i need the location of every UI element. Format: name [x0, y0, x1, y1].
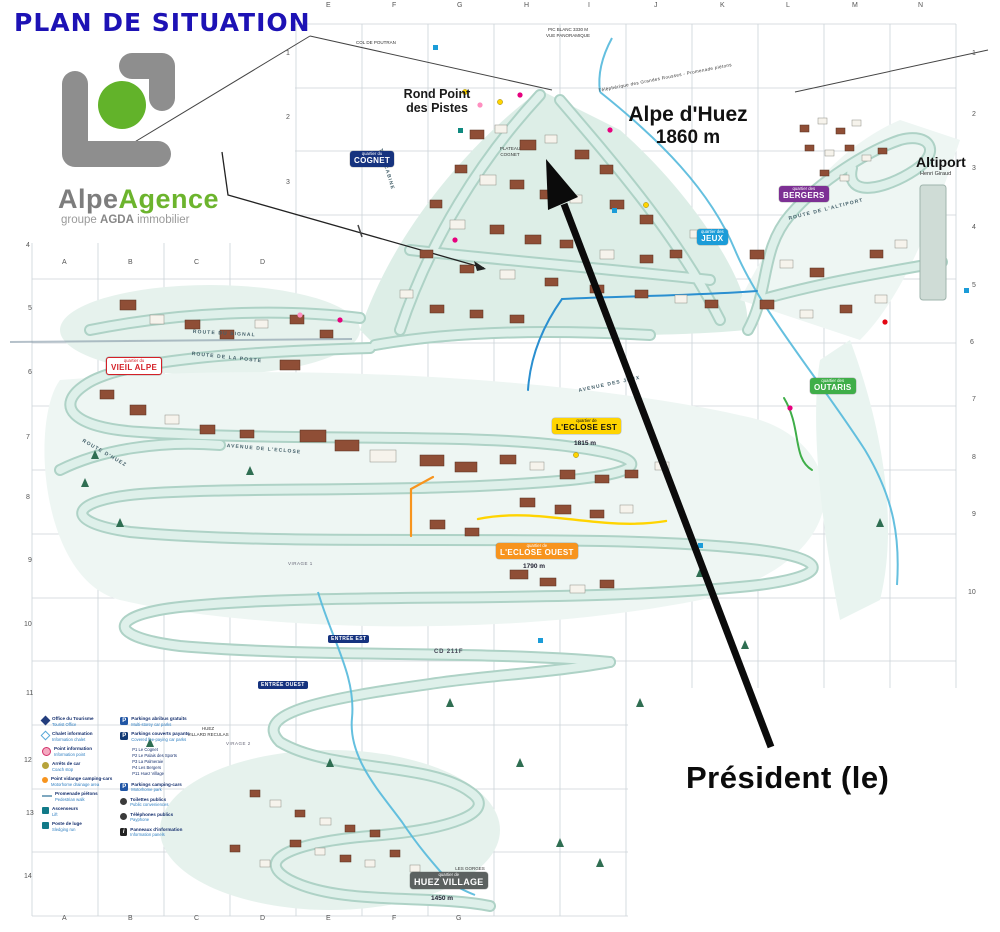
- agency-brand: AlpeAgence: [58, 184, 219, 215]
- grid-letter: F: [392, 915, 396, 922]
- legend-item: Téléphones publicsPayphone: [120, 812, 189, 823]
- grid-letter: H: [524, 2, 529, 9]
- grid-letter: E: [326, 915, 331, 922]
- legend-left-column: Office du TourismeTourist Office Chalet …: [42, 716, 112, 837]
- logo-green-circle: [98, 81, 146, 129]
- covered-parking-icon: P: [120, 732, 128, 740]
- grid-number: 4: [972, 224, 976, 231]
- grid-letter: I: [588, 2, 590, 9]
- legend-item: PParkings couverts payantsCovered fee-pa…: [120, 731, 189, 742]
- grid-number: 1: [286, 50, 290, 57]
- badge-entree-est: ENTRÉE EST: [328, 635, 369, 643]
- street-virage-1: VIRAGE 1: [288, 561, 313, 566]
- legend-item: Office du TourismeTourist Office: [42, 716, 112, 727]
- property-name-label: Président (le): [686, 760, 889, 796]
- label-col-poutran: COL DE POUTRAN: [356, 40, 396, 46]
- grid-number: 12: [24, 757, 32, 764]
- quartier-name: VIEIL ALPE: [111, 364, 157, 373]
- label-resort: Alpe d'Huez 1860 m: [608, 103, 768, 149]
- quartier-badge-outaris: quartier des OUTARIS: [810, 378, 856, 394]
- resort-name: Alpe d'Huez: [608, 103, 768, 127]
- eclose-est-altitude: 1815 m: [574, 440, 596, 447]
- info-point-icon: [42, 747, 51, 756]
- agency-logo-mark: [50, 52, 230, 177]
- grid-number: 1: [972, 50, 976, 57]
- lift-icon: [42, 807, 49, 814]
- quartier-name: COGNET: [354, 157, 390, 166]
- plan-de-situation-page: PLAN DE SITUATION AlpeAgence groupe AGDA…: [0, 0, 1000, 932]
- grid-number: 6: [28, 369, 32, 376]
- legend-item: Arrêts de carCoach stop: [42, 761, 112, 772]
- page-title: PLAN DE SITUATION: [14, 8, 311, 37]
- info-panel-icon: i: [120, 828, 127, 836]
- tagline-bold: AGDA: [100, 214, 134, 226]
- grid-letter: F: [392, 2, 396, 9]
- label-cd-road: CD 211F: [434, 649, 463, 655]
- legend-item: Promenade piétonsPedestrian walk: [42, 791, 112, 802]
- coach-stop-icon: [42, 762, 49, 769]
- quartier-badge-eclose-ouest: quartier de L'ECLOSE OUEST: [496, 543, 578, 559]
- grid-letter: G: [456, 915, 461, 922]
- grid-number: 2: [286, 114, 290, 121]
- label-pic-blanc: PIC BLANC 3330 M VUE PANORAMIQUE: [532, 27, 604, 39]
- grid-number: 5: [28, 305, 32, 312]
- grid-letter: C: [194, 259, 199, 266]
- tagline-prefix: groupe: [61, 214, 97, 226]
- grid-letter: J: [654, 2, 658, 9]
- brand-agence: Agence: [119, 184, 220, 214]
- agency-tagline: groupe AGDA immobilier: [61, 214, 190, 226]
- quartier-badge-eclose-est: quartier de L'ECLOSE EST: [552, 418, 621, 434]
- legend-item: Poste de lugeSledging run: [42, 821, 112, 832]
- grid-number: 9: [28, 557, 32, 564]
- resort-altitude: 1860 m: [608, 127, 768, 149]
- quartier-badge-jeux: quartier des JEUX: [697, 229, 728, 245]
- badge-entree-ouest: ENTRÉE OUEST: [258, 681, 308, 689]
- grid-number: 10: [24, 621, 32, 628]
- grid-letter: K: [720, 2, 725, 9]
- grid-letter: G: [457, 2, 462, 9]
- quartier-badge-huez-village: quartier de HUEZ VILLAGE: [410, 872, 488, 889]
- quartier-badge-bergers: quartier des BERGERS: [779, 186, 829, 202]
- tagline-suffix: immobilier: [137, 214, 189, 226]
- grid-letter: B: [128, 259, 133, 266]
- parking-entry: P2 Le Palais des Sports: [132, 753, 189, 758]
- quartier-name: BERGERS: [783, 192, 825, 201]
- agency-logo: [50, 52, 230, 177]
- quartier-name: L'ECLOSE OUEST: [500, 549, 574, 558]
- grid-letter: A: [62, 259, 67, 266]
- map-legend: Office du TourismeTourist Office Chalet …: [42, 716, 257, 837]
- free-parking-icon: P: [120, 717, 128, 725]
- parking-entry: P1 Le Cognet: [132, 747, 189, 752]
- grid-letter: C: [194, 915, 199, 922]
- toilets-icon: [120, 798, 127, 805]
- label-rond-point: Rond Point des Pistes: [394, 87, 480, 116]
- quartier-name: OUTARIS: [814, 384, 852, 393]
- legend-right-column: PParkings abribus gratuitsMulti-storey c…: [120, 716, 189, 837]
- quartier-name: L'ECLOSE EST: [556, 424, 617, 433]
- grid-letter: D: [260, 915, 265, 922]
- tourist-office-icon: [41, 716, 51, 726]
- grid-number: 5: [972, 282, 976, 289]
- label-altiport: Altiport: [916, 154, 966, 170]
- grid-letter: B: [128, 915, 133, 922]
- legend-item: Toilettes publicsPublic conveniences: [120, 797, 189, 808]
- quartier-name: HUEZ VILLAGE: [414, 878, 484, 888]
- sledging-icon: [42, 822, 49, 829]
- parking-entry: P4 Les Bergers: [132, 765, 189, 770]
- quartier-badge-cognet: quartier du COGNET: [350, 151, 394, 167]
- eclose-ouest-altitude: 1790 m: [523, 563, 545, 570]
- grid-number: 2: [972, 111, 976, 118]
- grid-number: 11: [26, 690, 33, 697]
- grid-number: 3: [972, 165, 976, 172]
- grid-number: 9: [972, 511, 976, 518]
- grid-letter: D: [260, 259, 265, 266]
- legend-item: PParkings camping-carsMotorhome park: [120, 782, 189, 793]
- quartier-badge-vieil-alpe: quartier du VIEIL ALPE: [106, 357, 162, 375]
- grid-letter: A: [62, 915, 67, 922]
- brand-alpe: Alpe: [58, 184, 119, 214]
- payphone-icon: [120, 813, 127, 820]
- parking-list: P1 Le Cognet P2 Le Palais des Sports P3 …: [132, 747, 189, 776]
- grid-number: 4: [26, 242, 30, 249]
- grid-number: 10: [968, 589, 976, 596]
- label-altiport-sub: Henri Giraud: [920, 171, 951, 177]
- label-plateau-cognet: PLATEAU COGNET: [492, 146, 528, 158]
- grid-number: 13: [26, 810, 34, 817]
- altiport-airstrip: [920, 185, 946, 300]
- grid-number: 8: [26, 494, 30, 501]
- legend-item: Point informationInformation point: [42, 746, 112, 757]
- quartier-name: JEUX: [701, 235, 723, 244]
- legend-item: Point vidange camping-carsMotorhome drai…: [42, 776, 112, 787]
- grid-letter: M: [852, 2, 858, 9]
- parking-entry: P11 Huez Village: [132, 771, 189, 776]
- pedestrian-walk-icon: [42, 795, 52, 797]
- grid-letter: N: [918, 2, 923, 9]
- legend-item: iPanneaux d'informationInformation panel…: [120, 827, 189, 838]
- grid-number: 8: [972, 454, 976, 461]
- grid-number: 3: [286, 179, 290, 186]
- grid-number: 7: [972, 396, 976, 403]
- legend-item: Chalet informationInformation chalet: [42, 731, 112, 742]
- huez-village-altitude: 1450 m: [431, 895, 453, 902]
- grid-letter: L: [786, 2, 790, 9]
- grid-number: 14: [24, 873, 32, 880]
- grid-letter: E: [326, 2, 331, 9]
- motorhome-park-icon: P: [120, 783, 128, 791]
- parking-entry: P3 La Palmeraie: [132, 759, 189, 764]
- legend-item: AscenseursLift: [42, 806, 112, 817]
- grid-number: 7: [26, 434, 30, 441]
- legend-item: PParkings abribus gratuitsMulti-storey c…: [120, 716, 189, 727]
- motorhome-drain-icon: [42, 777, 48, 783]
- chalet-info-icon: [41, 731, 51, 741]
- grid-number: 6: [970, 339, 974, 346]
